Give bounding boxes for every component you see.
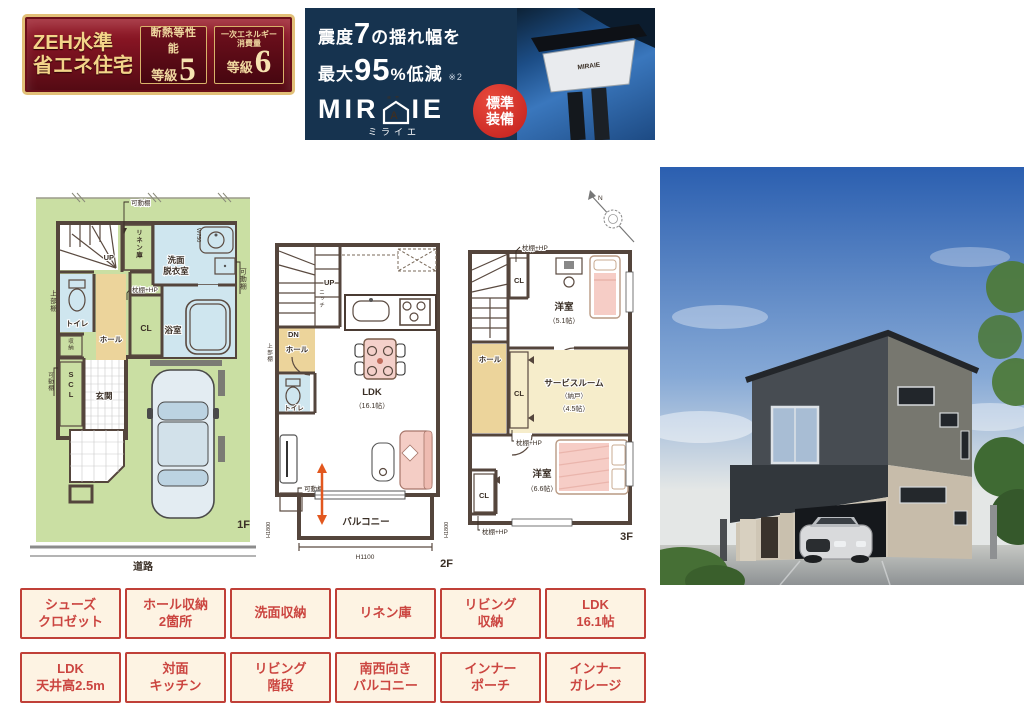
zeh-title: ZEH水準 省エネ住宅 (33, 32, 133, 78)
tag-washroom-storage: 洗面収納 (230, 588, 331, 639)
double-bed (556, 440, 628, 494)
tag-ceiling-height: LDK天井高2.5m (20, 652, 121, 703)
h1100-label: H1100 (356, 554, 375, 561)
zeh-badge: ZEH水準 省エネ住宅 断熱等性能 等級 5 一次エネルギー 消費量 等級 6 (22, 14, 295, 95)
tag-line: 階段 (267, 678, 293, 695)
bath-label: 浴室 (164, 325, 182, 335)
scl-label: SCL (67, 370, 76, 400)
miraie-headline: 震度7の揺れ幅を (318, 18, 470, 51)
dining-set (355, 339, 405, 379)
miraie-text-block: 震度7の揺れ幅を 最大95%低減 ※2 MIR “” A IE ミライエ (318, 18, 470, 138)
tag-line: バルコニー (353, 678, 418, 695)
hall-label-3f: ホール (479, 355, 502, 364)
damper-leg-right (591, 88, 610, 140)
tag-linen-closet: リネン庫 (335, 588, 436, 639)
kitchen (345, 295, 436, 330)
hall-2f: DN ホール (279, 327, 315, 373)
toilet-1f: トイレ (60, 274, 94, 332)
headline-post: の揺れ幅を (371, 28, 461, 47)
gate-post (720, 519, 727, 561)
service-room-nando: （納戸） (561, 391, 587, 400)
makuradana-3f-bottom: 枕棚+HP (482, 527, 508, 536)
tag-southwest-balcony: 南西向きバルコニー (335, 652, 436, 703)
tag-line: 天井高2.5m (36, 678, 105, 695)
floorplan-2f: UP ニッチ DN ホール 上部棚 トイレ (260, 225, 460, 570)
stairs-2f: UP ニッチ (279, 247, 340, 327)
floorplan-3f: N DN CL 枕棚+HP (452, 188, 657, 553)
subline-note: ※2 (448, 72, 463, 82)
entrance-label: 玄関 (95, 391, 112, 401)
zeh-title-line1: ZEH水準 (33, 32, 133, 55)
tag-inner-garage: インナーガレージ (545, 652, 646, 703)
tag-living-stairs: リビング階段 (230, 652, 331, 703)
up-label-2f: UP (324, 278, 334, 287)
house-logo-icon: “” A (381, 95, 411, 125)
balcony: バルコニー (299, 491, 432, 538)
tag-line: ガレージ (570, 678, 622, 695)
single-bed (590, 256, 620, 318)
window-3f-right-2 (940, 413, 958, 427)
hall-label-1f: ホール (100, 335, 123, 344)
window-2f-right (900, 487, 946, 503)
subline-big: 95 (354, 52, 390, 87)
hall-1f: ホール (96, 274, 126, 360)
tag-line: ホール収納 (143, 597, 208, 614)
miraie-logo: MIR “” A IE (318, 94, 470, 125)
bedroom51-size: （5.1帖） (549, 316, 580, 325)
h1800-left-label: H1800 (266, 522, 272, 538)
dn-label-2f: DN (288, 330, 299, 339)
cl-label-1f: CL (140, 323, 151, 333)
tag-shoes-closet: シューズクロゼット (20, 588, 121, 639)
sofa (400, 431, 432, 489)
niche-label: ニッチ (318, 289, 325, 309)
ldk-size-label: （16.1帖） (355, 401, 390, 410)
subline-post: 低減 (407, 65, 443, 84)
tag-ldk-size: LDK16.1帖 (545, 588, 646, 639)
tag-line: LDK (582, 597, 609, 614)
bedroom-51: 洋室 （5.1帖） (549, 256, 620, 325)
headline-big: 7 (354, 18, 371, 50)
makuradana-3f-mid: 枕棚+HP (516, 438, 542, 447)
tag-line: インナー (464, 661, 516, 678)
insulation-label: 断熱等性能 (146, 24, 201, 56)
tag-line: クロゼット (38, 614, 103, 631)
insulation-grade-value: 5 (179, 56, 196, 86)
logo-house-letter: A (390, 110, 402, 122)
house-render (660, 167, 1024, 585)
cl-bottom-label: CL (479, 491, 489, 500)
standard-equipment-badge: 標準 装備 (473, 84, 527, 138)
tag-line: インナー (569, 661, 621, 678)
bedroom66-size: （6.6帖） (527, 484, 558, 493)
subline-pre: 最大 (318, 65, 354, 84)
porch-column-left (740, 519, 756, 561)
miraie-subline: 最大95%低減 ※2 (318, 52, 470, 88)
zeh-title-line2: 省エネ住宅 (33, 55, 133, 78)
damper-illustration: MIRAIE (517, 8, 655, 140)
energy-grade-prefix: 等級 (227, 57, 253, 76)
miraie-kana: ミライエ (318, 125, 470, 138)
ldk-label: LDK (362, 387, 382, 398)
joubudana-label-2f: 上部棚 (266, 342, 273, 363)
energy-grade-value: 6 (255, 48, 272, 78)
bedroom51-label: 洋室 (554, 301, 574, 313)
floor-label-3f: 3F (620, 531, 633, 543)
coffee-table (372, 443, 394, 481)
bathroom: 浴室 (162, 285, 235, 357)
service-room-label: サービスルーム (544, 378, 604, 388)
makuradana-3f-top: 枕棚+HP (522, 243, 548, 252)
toilet-label-2f: トイレ (284, 404, 304, 412)
tag-hall-storage: ホール収納2箇所 (125, 588, 226, 639)
tag-line: リビング (254, 661, 306, 678)
cl-service-label: CL (514, 389, 524, 398)
bedroom66-label: 洋室 (532, 468, 552, 480)
hall-label-2f: ホール (286, 345, 309, 354)
standard-line1: 標準 (486, 95, 514, 111)
tag-line: 対面 (162, 661, 188, 678)
washroom-label-2: 脱衣室 (163, 266, 189, 276)
tag-living-storage: リビング収納 (440, 588, 541, 639)
balcony-label: バルコニー (342, 516, 389, 528)
subline-unit: % (390, 65, 406, 84)
flyer-page: ZEH水準 省エネ住宅 断熱等性能 等級 5 一次エネルギー 消費量 等級 6 (0, 0, 1024, 710)
tag-line: シューズ (45, 597, 96, 614)
road: 道路 (30, 547, 256, 572)
service-room: サービスルーム （納戸） （4.5帖） CL 枕棚+HP (510, 350, 628, 447)
damper-leg-left (567, 92, 585, 140)
tag-line: キッチン (149, 678, 201, 695)
tag-counter-kitchen: 対面キッチン (125, 652, 226, 703)
window-3f-right-3 (961, 431, 969, 459)
porch-column-right (780, 513, 793, 559)
floor-label-1f: 1F (237, 519, 250, 531)
hall-3f: ホール (472, 344, 506, 433)
ceiling-dashed (342, 249, 436, 271)
tag-line: 収納 (477, 614, 503, 631)
w750-label: W750 (195, 228, 201, 242)
tag-line: 洗面収納 (254, 605, 306, 622)
tag-line: 16.1帖 (576, 614, 614, 631)
stairs-3f (472, 254, 508, 342)
headline-pre: 震度 (318, 28, 354, 47)
tag-inner-porch: インナーポーチ (440, 652, 541, 703)
compass-icon: N (588, 190, 634, 242)
floorplan-1f: UP リネン庫 可動棚 W750 洗面 脱衣室 可動棚 (30, 190, 256, 572)
floor-label-2f: 2F (440, 558, 453, 570)
insulation-grade-prefix: 等級 (151, 65, 177, 84)
tag-line: ポーチ (471, 678, 510, 695)
dimension-line (299, 543, 432, 551)
up-label-1f: UP (104, 253, 114, 262)
car (147, 370, 219, 518)
storage-label: 収納 (67, 338, 74, 352)
stairs-1f: UP (60, 225, 118, 270)
tag-line: 南西向き (359, 661, 411, 678)
washroom-label-1: 洗面 (167, 255, 185, 265)
window-1f-right (954, 511, 967, 525)
tag-line: 2箇所 (159, 614, 192, 631)
road-label: 道路 (133, 560, 154, 572)
fence-post (990, 505, 997, 559)
miraie-banner: MIRAIE 震度7の揺れ幅を 最大95%低減 ※2 MIR “” A IE ミ… (305, 8, 655, 140)
service-room-size: （4.5帖） (559, 404, 590, 413)
damper-photo: MIRAIE (517, 8, 655, 140)
entrance-door (761, 517, 778, 558)
kadoudana-top-label: 可動棚 (131, 198, 151, 207)
kadoudana-scl-label: 可動棚 (47, 372, 54, 392)
tag-line: リネン庫 (359, 605, 411, 622)
north-label: N (598, 195, 603, 202)
feature-tag-grid: シューズクロゼット ホール収納2箇所 洗面収納 リネン庫 リビング収納 LDK1… (20, 588, 652, 703)
h1800-right-label: H1800 (444, 522, 450, 538)
logo-right: IE (412, 94, 446, 125)
toilet-label-1f: トイレ (66, 319, 89, 328)
energy-grade-box: 一次エネルギー 消費量 等級 6 (214, 26, 284, 84)
logo-left: MIR (318, 94, 380, 125)
insulation-grade-box: 断熱等性能 等級 5 (140, 26, 207, 84)
tag-line: LDK (57, 661, 84, 678)
cl-top-label: CL (514, 276, 524, 285)
window-3f-right-1 (898, 387, 934, 405)
standard-line2: 装備 (486, 111, 514, 127)
tag-line: リビング (464, 597, 516, 614)
tv-board (280, 435, 297, 483)
